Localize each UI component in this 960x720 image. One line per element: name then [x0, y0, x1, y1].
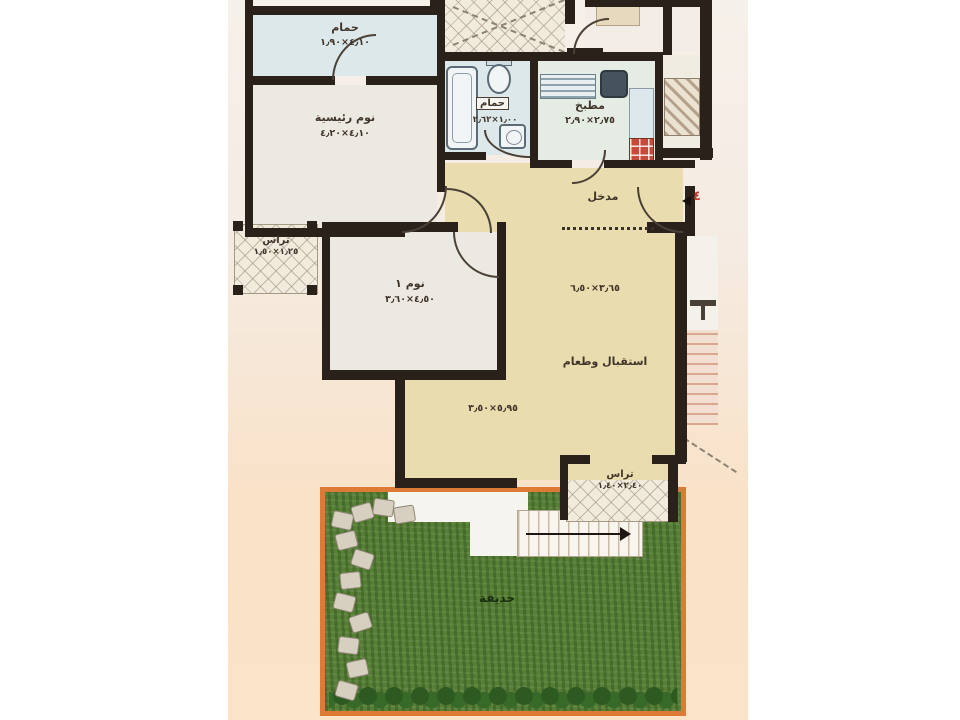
wall: [530, 52, 538, 168]
wall: [560, 455, 568, 520]
wall: [322, 222, 458, 232]
wall: [700, 0, 712, 160]
wall: [604, 160, 663, 168]
wall: [437, 6, 445, 84]
reception-lower: [405, 378, 676, 480]
stone: [372, 498, 395, 518]
reception-dims-upper: ٣٫٦٥×٦٫٥٠: [540, 284, 650, 294]
garden-hedge: [329, 683, 677, 709]
wall-stub: [307, 221, 317, 231]
wall: [395, 478, 517, 488]
wall: [322, 370, 506, 380]
neighbour-steps: [687, 330, 718, 425]
kitchen-sink: [600, 70, 628, 98]
stair-landing: [445, 0, 565, 52]
wall: [322, 222, 330, 380]
wall: [668, 455, 678, 522]
wall: [655, 52, 663, 168]
kitchen-counter: [540, 74, 596, 99]
wall: [663, 0, 672, 55]
terrace-bottom-label: تراس: [592, 469, 648, 480]
wall: [675, 230, 687, 462]
bedroom-1-label: نوم ١: [360, 278, 460, 290]
wall: [437, 84, 445, 192]
neighbour-stairs-hatch: [664, 78, 700, 136]
bathroom-top-dims: ٤٫١٠×١٫٩٠: [292, 38, 398, 48]
wall-stub: [233, 221, 243, 231]
dashed-ceiling-line: [453, 6, 565, 53]
wall: [585, 0, 710, 7]
bathtub: [446, 66, 478, 150]
bathroom-top-label: حمام: [300, 22, 390, 34]
terrace-left-label: تراس: [248, 235, 304, 246]
wall-stub: [233, 285, 243, 295]
kitchen-label: مطبخ: [560, 100, 620, 112]
wall: [366, 76, 445, 85]
terrace-bottom-dims: ٢٫٤٠×١٫٤٠: [578, 482, 662, 491]
wall: [440, 52, 538, 61]
bathtub-inner: [452, 73, 472, 143]
wall: [245, 76, 335, 85]
bathroom-small-dims: ١٫٠٠×٢٫٦٢: [458, 116, 532, 125]
wall: [245, 6, 445, 15]
wall-stub: [307, 285, 317, 295]
wall: [566, 455, 590, 464]
wall: [430, 0, 445, 7]
reception-dims-lower: ٥٫٩٥×٣٫٥٠: [438, 404, 548, 414]
reception-label: استقبال وطعام: [550, 356, 660, 368]
unit-pointer-icon: [682, 196, 691, 206]
stairs-direction-arrow: [526, 533, 622, 535]
kitchen-dims: ٢٫٧٥×٢٫٩٠: [552, 116, 628, 126]
stone: [339, 571, 362, 590]
entrance-threshold: [562, 227, 654, 230]
wall: [565, 0, 575, 24]
wall: [538, 160, 572, 168]
toilet: [487, 64, 511, 94]
master-bedroom-dims: ٤٫١٠×٤٫٢٠: [292, 129, 398, 139]
neighbour-table-leg: [701, 306, 705, 320]
dashed-ceiling-line: [453, 0, 565, 46]
entrance-label: مدخل: [578, 191, 628, 203]
stone: [393, 504, 416, 524]
bathroom-small-label: حمام: [476, 97, 509, 110]
wall: [440, 152, 486, 160]
master-bedroom-label: نوم رئيسية: [300, 112, 390, 124]
stone: [337, 636, 360, 655]
wall: [245, 0, 253, 236]
terrace-left-dims: ١٫٢٥×١٫٥٠: [236, 248, 316, 257]
garden-label: حديقة: [452, 592, 542, 605]
bedroom-1-dims: ٤٫٥٠×٣٫٦٠: [352, 295, 468, 305]
floorplan-page: ٤ حمام ٤٫١٠×١٫٩٠ نوم رئيسية ٤٫١٠×٤٫٢٠ حم…: [0, 0, 960, 720]
wall: [663, 160, 695, 168]
wall: [395, 376, 405, 488]
wall: [663, 148, 713, 158]
stairs-arrow-head-icon: [620, 527, 631, 541]
unit-number: ٤: [693, 189, 701, 204]
